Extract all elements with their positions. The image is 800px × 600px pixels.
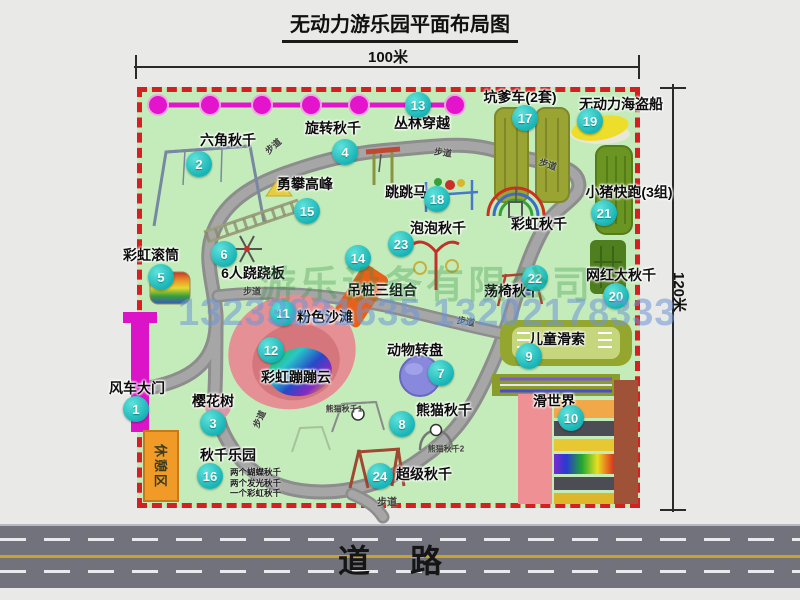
facility-badge-12: 12 [258, 337, 284, 363]
facility-badge-10: 10 [558, 405, 584, 431]
facility-badge-21: 21 [591, 200, 617, 226]
path-label: 熊猫秋千1 [326, 404, 362, 415]
facility-label-12: 彩虹蹦蹦云 [261, 367, 331, 387]
facility-badge-2: 2 [186, 151, 212, 177]
facility-label-20: 网红大秋千 [586, 265, 656, 285]
page-title: 无动力游乐园平面布局图 [282, 8, 518, 43]
path-label: 熊猫秋千2 [428, 444, 464, 455]
path-label: 步道 [377, 494, 397, 509]
facility-label-23: 泡泡秋千 [410, 218, 466, 238]
facility-label-16: 秋千乐园 [200, 445, 256, 465]
facility-label-5: 彩虹滚筒 [123, 245, 179, 265]
facility-badge-13: 13 [405, 92, 431, 118]
path-label: 步道 [537, 155, 558, 173]
facility-notes-16: 两个蝴蝶秋千两个发光秋千一个彩虹秋千 [230, 467, 281, 499]
path-label: 步道 [262, 135, 284, 157]
facility-badge-18: 18 [424, 186, 450, 212]
facility-label-3: 樱花树 [192, 391, 234, 411]
facility-label-18: 跳跳马 [385, 182, 427, 202]
facility-label-1: 风车大门 [109, 378, 165, 398]
facility-badge-15: 15 [294, 198, 320, 224]
facility-label-7: 动物转盘 [387, 340, 443, 360]
facility-label-4: 旋转秋千 [305, 118, 361, 138]
facility-label-8: 熊猫秋千 [416, 400, 472, 420]
facility-label-rainbow-swing: 彩虹秋千 [511, 214, 567, 234]
facility-label-24: 超级秋千 [396, 464, 452, 484]
facility-label-17: 坑爹车(2套) [483, 87, 556, 107]
facility-badge-3: 3 [200, 410, 226, 436]
facility-badge-9: 9 [516, 343, 542, 369]
facility-badge-7: 7 [428, 360, 454, 386]
path-label: 步道 [433, 144, 453, 159]
facility-label-2: 六角秋千 [200, 130, 256, 150]
facility-badge-19: 19 [577, 108, 603, 134]
facility-badge-5: 5 [148, 264, 174, 290]
facility-badge-8: 8 [389, 411, 415, 437]
phone-watermark: 13233831635 13202178333 [178, 292, 677, 335]
facility-badge-1: 1 [123, 396, 149, 422]
facility-badge-24: 24 [367, 463, 393, 489]
facility-label-15: 勇攀高峰 [277, 174, 333, 194]
path-label: 步道 [249, 408, 268, 430]
park-plan-screenshot: 无动力游乐园平面布局图 100米 120米 [0, 0, 800, 600]
facility-label-21: 小猪快跑(3组) [585, 182, 672, 202]
facility-badge-6: 6 [211, 241, 237, 267]
facility-badge-17: 17 [512, 105, 538, 131]
facility-badge-16: 16 [197, 463, 223, 489]
facility-badge-4: 4 [332, 139, 358, 165]
